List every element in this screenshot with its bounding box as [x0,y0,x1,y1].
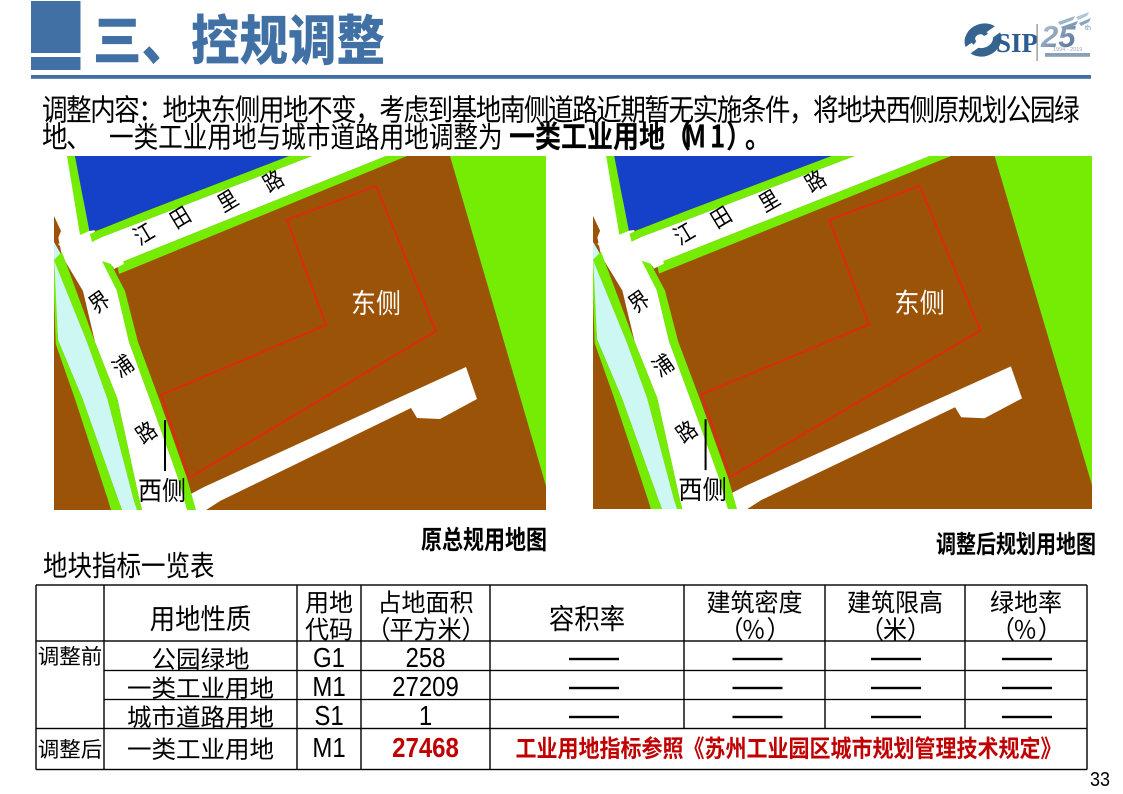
svg-text:M1: M1 [312,734,345,764]
svg-text:1: 1 [419,702,432,732]
svg-text:S1: S1 [314,702,343,732]
svg-text:G1: G1 [313,644,345,674]
svg-text:1994 - 2019: 1994 - 2019 [1053,47,1082,53]
svg-text:27209: 27209 [392,673,459,703]
svg-text:SIP: SIP [996,28,1038,58]
svg-text:M1: M1 [312,673,345,703]
svg-text:33: 33 [1090,768,1110,791]
svg-text:th: th [1085,25,1091,32]
svg-text:27468: 27468 [392,734,459,764]
svg-text:258: 258 [405,644,445,674]
